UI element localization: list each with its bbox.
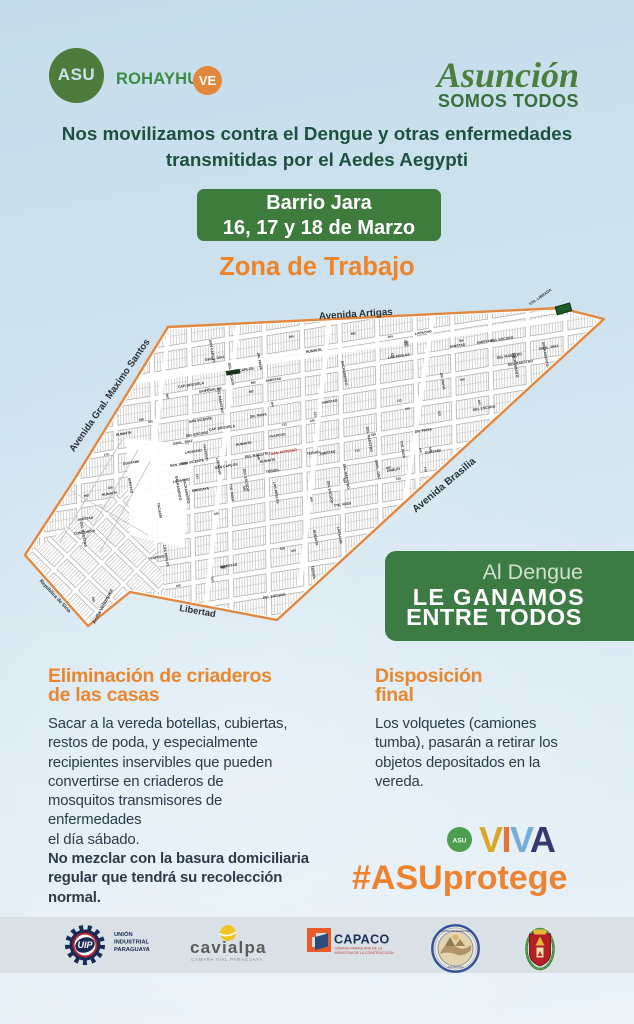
svg-text:892: 892 <box>251 380 257 385</box>
svg-text:UIP: UIP <box>77 940 93 950</box>
svg-text:892: 892 <box>84 493 90 498</box>
svg-text:INDUSTRIA DE LA CONSTRUCCIÓN: INDUSTRIA DE LA CONSTRUCCIÓN <box>335 950 395 955</box>
svg-text:INDUSTRIAL: INDUSTRIAL <box>114 940 150 946</box>
svg-text:548: 548 <box>371 432 377 437</box>
svg-text:519: 519 <box>396 476 402 481</box>
svg-text:519: 519 <box>280 546 286 551</box>
svg-text:STA. LIBRADA: STA. LIBRADA <box>528 288 552 307</box>
svg-text:264: 264 <box>388 334 394 339</box>
svg-text:548: 548 <box>460 377 466 382</box>
svg-text:CAPACO: CAPACO <box>334 933 390 947</box>
svg-text:723: 723 <box>355 448 361 453</box>
svg-text:MUNICIPALIDAD DE: MUNICIPALIDAD DE <box>441 929 469 933</box>
svg-text:445: 445 <box>148 419 154 424</box>
svg-text:CAMARA VIAL PARAGUAYA: CAMARA VIAL PARAGUAYA <box>191 957 263 962</box>
svg-text:cavialpa: cavialpa <box>190 938 267 957</box>
svg-text:445: 445 <box>214 511 220 516</box>
svg-text:264: 264 <box>289 334 295 339</box>
svg-text:UNIÓN: UNIÓN <box>114 930 133 938</box>
svg-text:445: 445 <box>405 406 411 411</box>
svg-text:ASUNCIÓN: ASUNCIÓN <box>448 964 464 969</box>
svg-text:892: 892 <box>221 565 227 570</box>
svg-text:445: 445 <box>108 485 114 490</box>
svg-text:ASU: ASU <box>453 838 467 845</box>
svg-text:723: 723 <box>282 422 288 427</box>
svg-text:723: 723 <box>397 398 403 403</box>
svg-text:178: 178 <box>104 452 110 457</box>
svg-text:892: 892 <box>249 389 255 394</box>
svg-text:445: 445 <box>310 418 316 423</box>
svg-text:445: 445 <box>176 583 182 588</box>
svg-text:892: 892 <box>351 331 357 336</box>
svg-text:CÁMARA PARAGUAYA DE LA: CÁMARA PARAGUAYA DE LA <box>335 947 383 951</box>
svg-text:PARAGUAYA: PARAGUAYA <box>114 947 151 953</box>
svg-text:548: 548 <box>139 417 145 422</box>
svg-text:445: 445 <box>291 548 297 553</box>
